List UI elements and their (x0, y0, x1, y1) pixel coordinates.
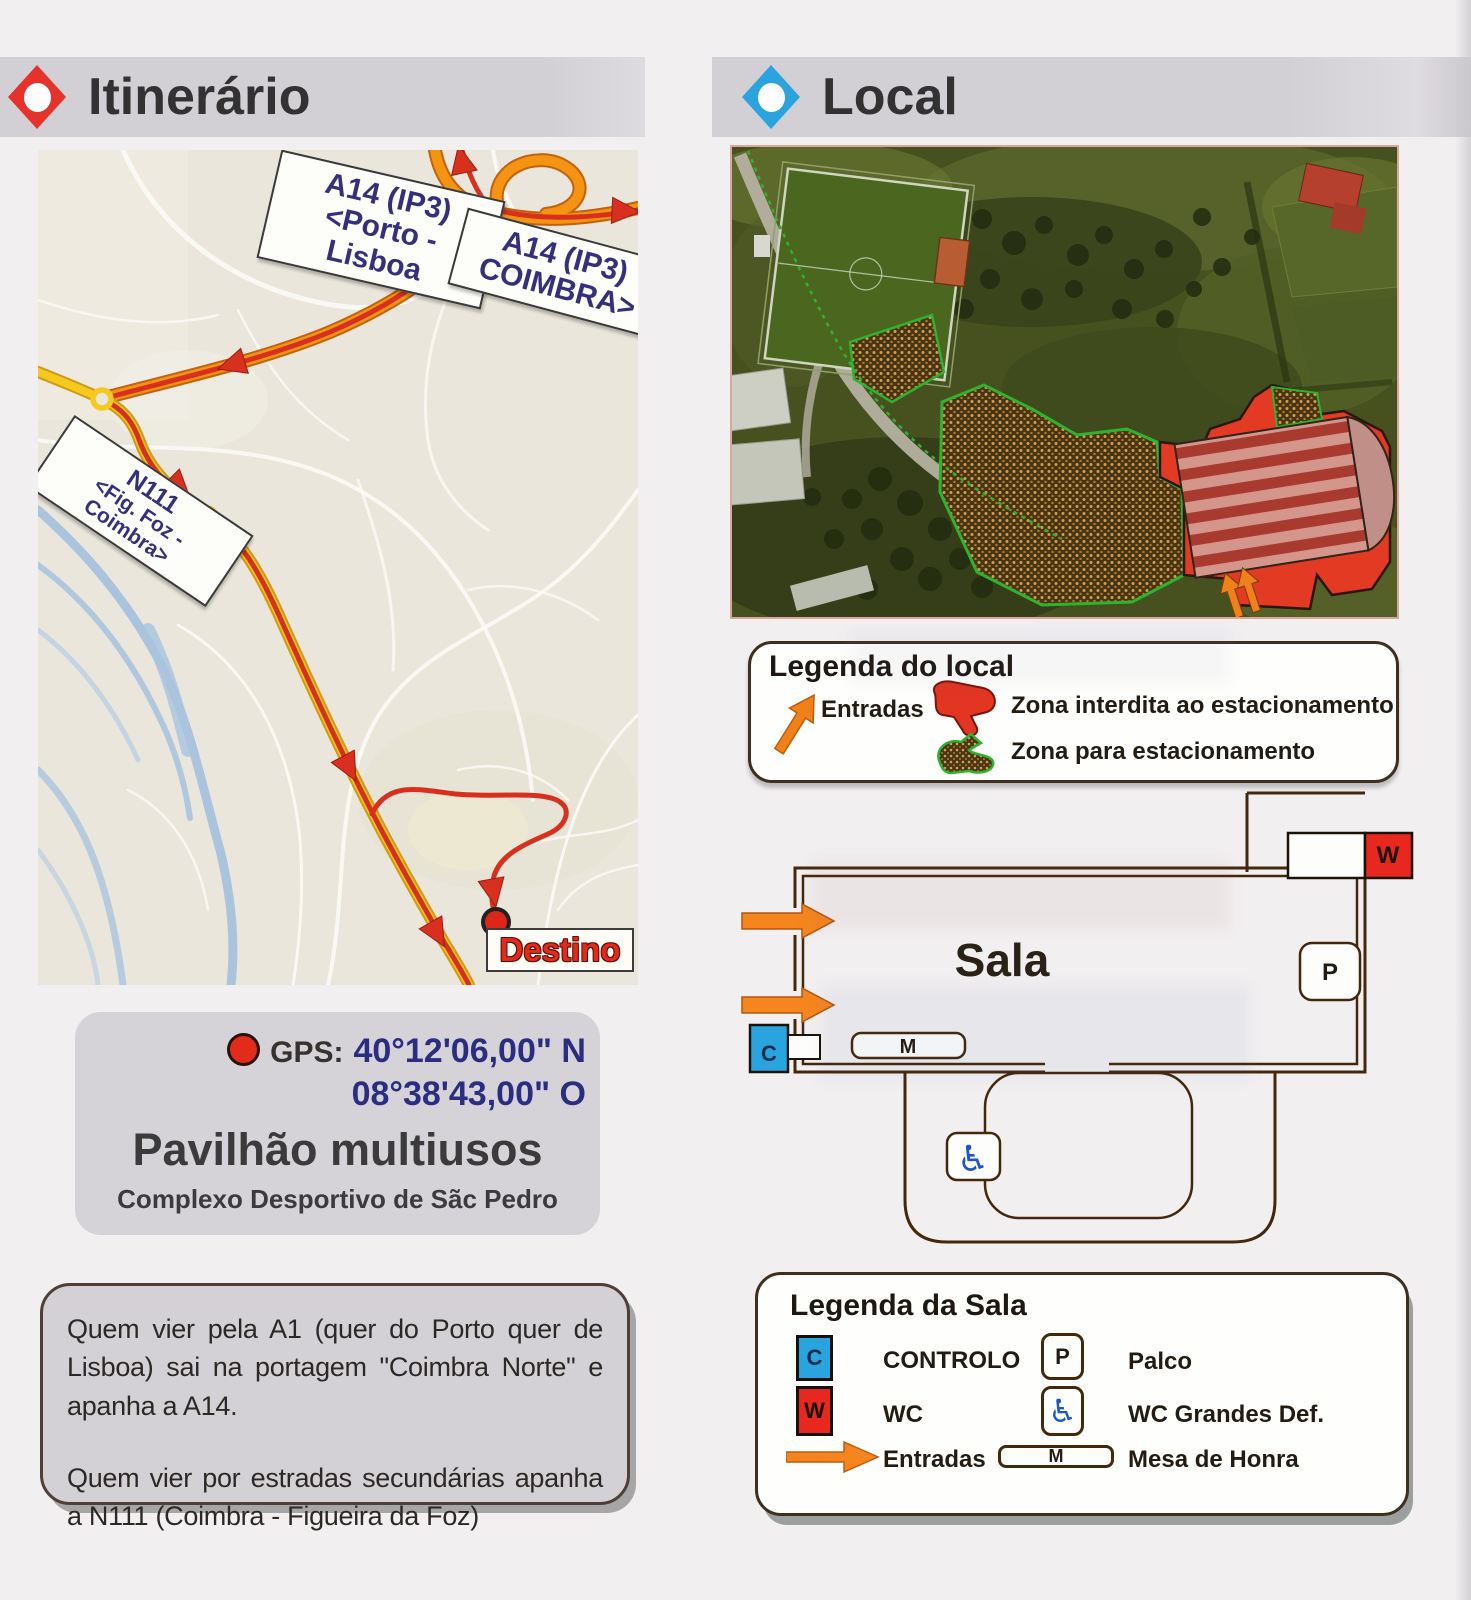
venue-complex: Complexo Desportivo de Sãc Pedro (75, 1184, 600, 1215)
gps-longitude: 08°38'43,00" O (352, 1075, 586, 1113)
red-diamond-icon (8, 65, 66, 129)
gps-label: GPS: (270, 1036, 343, 1069)
clubhouse-building (934, 237, 969, 286)
palco-label: Palco (1128, 1348, 1192, 1376)
local-header: Local (712, 57, 1471, 137)
gps-row-lat: GPS:40°12'06,00" N (75, 1032, 600, 1071)
site-legend-no-parking-label: Zona interdita ao estacionamento (1011, 692, 1394, 720)
roundabout-1 (93, 390, 111, 408)
palco-legend-symbol: P (1055, 1344, 1070, 1370)
wheelchair-icon: ♿ (957, 1139, 989, 1180)
entradas-label: Entradas (883, 1446, 986, 1474)
site-legend-card: Legenda do local Entradas Zona interdita… (748, 641, 1399, 783)
parking-notch (1272, 387, 1322, 427)
wc-legend-symbol: W (804, 1398, 825, 1424)
entrance-arrow-icon (765, 684, 827, 764)
route-map: A14 (IP3) <Porto - Lisboa A14 (IP3) COIM… (38, 150, 638, 985)
itinerario-header: Itinerário (0, 57, 645, 137)
room-legend-title: Legenda da Sala (790, 1289, 1027, 1323)
floorplan: W P C M Sala ♿ (730, 780, 1470, 1260)
directions-paragraph-2: Quem vier por estradas secundárias apanh… (67, 1459, 603, 1536)
wc-grandes-def-label: WC Grandes Def. (1128, 1401, 1324, 1429)
wc-legend-icon: W (796, 1386, 833, 1436)
itinerario-title: Itinerário (88, 67, 311, 127)
room-name: Sala (955, 934, 1050, 986)
gps-latitude: 40°12'06,00" N (353, 1032, 586, 1070)
gps-dot-icon (227, 1033, 260, 1066)
blue-diamond-icon (742, 65, 800, 129)
destino-label: Destino (499, 931, 620, 969)
entry-arrows (742, 904, 834, 1022)
wheelchair-legend-symbol: ♿ (1048, 1392, 1077, 1430)
aerial-photo (730, 145, 1399, 619)
site-legend-entradas-label: Entradas (821, 696, 924, 724)
gps-card: GPS:40°12'06,00" N 08°38'43,00" O Pavilh… (75, 1012, 600, 1235)
parking-zone-icon (931, 730, 1001, 778)
wc-label: WC (883, 1401, 923, 1429)
stage-marker: P (1322, 959, 1338, 986)
venue-name: Pavilhão multiusos (75, 1124, 600, 1176)
destino-label-box: Destino (486, 928, 634, 972)
brochure-page: Itinerário Local (0, 0, 1471, 1600)
control-legend-symbol: C (807, 1345, 823, 1371)
site-legend-parking-label: Zona para estacionamento (1011, 738, 1315, 766)
control-desk (788, 1035, 820, 1059)
head-table-marker: M (900, 1036, 917, 1058)
control-legend-icon: C (796, 1335, 833, 1381)
directions-paragraph-1: Quem vier pela A1 (quer do Porto quer de… (67, 1310, 603, 1425)
aerial-photo-graphic (732, 147, 1397, 617)
control-marker: C (761, 1041, 777, 1066)
entradas-legend-arrow-icon (786, 1440, 881, 1474)
wheelchair-legend-icon: ♿ (1041, 1386, 1084, 1436)
directions-card: Quem vier pela A1 (quer do Porto quer de… (40, 1283, 630, 1505)
local-title: Local (822, 67, 958, 127)
mesa-legend-icon: M (998, 1445, 1114, 1468)
wc-anteroom (1288, 833, 1365, 878)
controlo-label: CONTROLO (883, 1347, 1020, 1375)
room-legend-card: Legenda da Sala C CONTROLO W WC Entradas… (755, 1272, 1409, 1516)
corridor-inner-block (985, 1073, 1192, 1218)
mesa-legend-symbol: M (1049, 1446, 1064, 1467)
wc-marker: W (1377, 842, 1400, 869)
gps-row-lon: 08°38'43,00" O (75, 1075, 600, 1114)
floorplan-graphic: W P C M Sala ♿ (730, 780, 1470, 1260)
mesa-de-honra-label: Mesa de Honra (1128, 1446, 1299, 1474)
palco-legend-icon: P (1041, 1333, 1084, 1380)
